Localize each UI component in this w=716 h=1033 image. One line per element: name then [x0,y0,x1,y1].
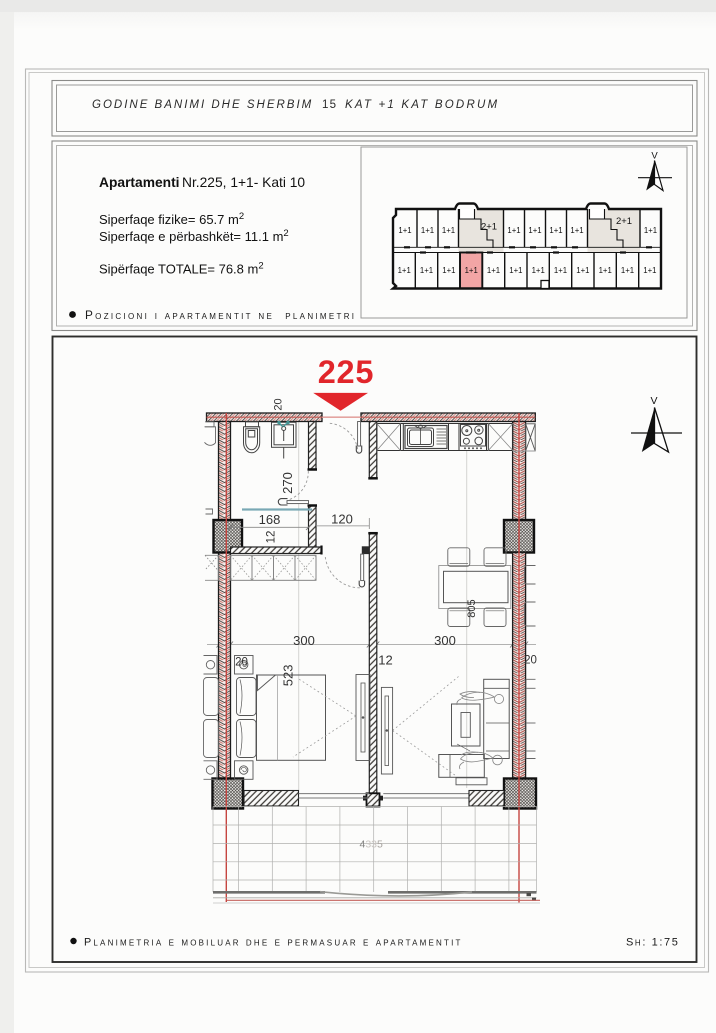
svg-text:KAT +1 KAT BODRUM: KAT +1 KAT BODRUM [345,99,499,111]
svg-text:1+1: 1+1 [442,266,455,275]
svg-text:1+1: 1+1 [421,226,434,235]
svg-text:1+1: 1+1 [507,226,520,235]
svg-text:2+1: 2+1 [616,216,632,227]
svg-text:168: 168 [259,512,281,527]
svg-text:Sh: 1:75: Sh: 1:75 [626,937,679,949]
svg-text:1+1: 1+1 [532,266,545,275]
svg-text:805: 805 [466,599,478,617]
svg-text:300: 300 [293,633,315,648]
svg-text:1+1: 1+1 [570,226,583,235]
svg-text:1+1: 1+1 [398,226,411,235]
svg-text:1+1: 1+1 [465,266,478,275]
svg-text:1+1: 1+1 [549,226,562,235]
svg-text:225: 225 [318,354,375,390]
svg-text:1+1: 1+1 [554,266,567,275]
svg-text:120: 120 [331,512,353,527]
svg-text:1+1: 1+1 [576,266,589,275]
svg-text:1+1: 1+1 [599,266,612,275]
svg-text:300: 300 [434,633,456,648]
svg-text:270: 270 [280,472,295,494]
svg-text:1+1: 1+1 [487,266,500,275]
svg-text:V: V [651,151,658,162]
svg-text:Siperfaqe fizike= 65.7 m2: Siperfaqe fizike= 65.7 m2 [99,211,244,227]
svg-text:V: V [650,395,657,407]
svg-text:523: 523 [281,665,296,687]
svg-text:12: 12 [378,653,392,668]
svg-text:20: 20 [235,657,248,669]
svg-text:Planimetria e mobiluar dhe e p: Planimetria e mobiluar dhe e permasuar e… [84,937,463,949]
svg-text:Nr.225, 1+1- Kati 10: Nr.225, 1+1- Kati 10 [182,175,305,190]
svg-text:15: 15 [322,99,337,111]
svg-text:Sipërfaqe TOTALE= 76.8 m2: Sipërfaqe TOTALE= 76.8 m2 [99,261,264,277]
svg-text:1+1: 1+1 [528,226,541,235]
svg-text:1+1: 1+1 [644,226,657,235]
svg-text:GODINE BANIMI DHE SHERBIM: GODINE BANIMI DHE SHERBIM [92,99,313,111]
svg-text:Siperfaqe e përbashkët= 11.1 m: Siperfaqe e përbashkët= 11.1 m2 [99,228,289,244]
svg-text:1+1: 1+1 [398,266,411,275]
svg-text:Pozicioni i apartamentit ne p: Pozicioni i apartamentit ne planimetri [85,308,356,322]
svg-text:1+1: 1+1 [509,266,522,275]
svg-text:12: 12 [266,531,278,544]
svg-text:1+1: 1+1 [420,266,433,275]
svg-text:4335: 4335 [360,839,384,851]
svg-text:20: 20 [524,655,537,667]
svg-text:2+1: 2+1 [481,222,497,233]
svg-text:20: 20 [273,398,285,410]
svg-text:1+1: 1+1 [621,266,634,275]
svg-text:Apartamenti: Apartamenti [99,175,180,190]
svg-text:1+1: 1+1 [643,266,656,275]
svg-text:1+1: 1+1 [442,226,455,235]
